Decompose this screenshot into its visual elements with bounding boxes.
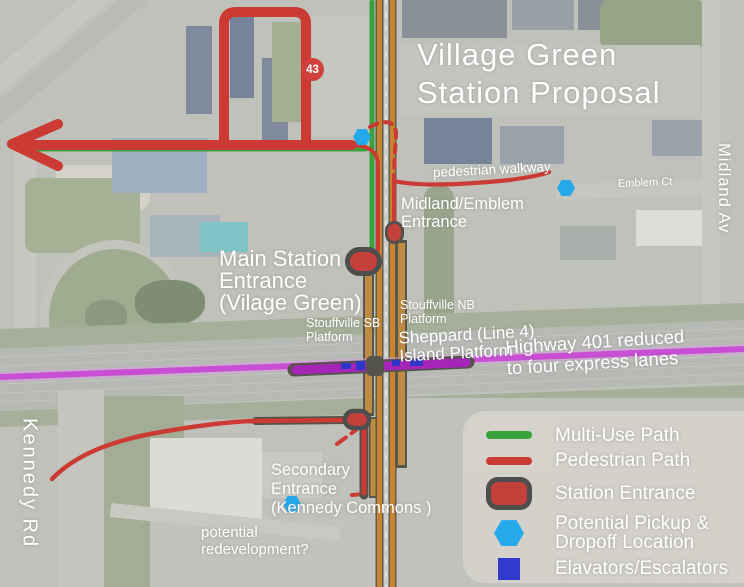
legend-label: Potential Pickup & Dropoff Location (555, 514, 709, 552)
pedestrian-path-line-icon (486, 457, 532, 465)
kennedy-commons-path (52, 421, 258, 479)
elevator-square-icon (498, 558, 520, 580)
label-midland-emblem-entrance: Midland/Emblem Entrance (401, 196, 524, 232)
secondary-entrance-marker (345, 411, 369, 428)
legend-row-multi-use-path: Multi-Use Path (463, 422, 744, 448)
pickup-hexagon (557, 180, 575, 196)
pickup-dropoff-hexagon-icon (494, 520, 524, 546)
legend-label: Multi-Use Path (555, 426, 680, 445)
label-emblem-ct: Emblem Ct (618, 177, 673, 191)
legend-row-pedestrian-path: Pedestrian Path (463, 448, 744, 473)
legend-row-station-entrance: Station Entrance (463, 477, 744, 511)
route-43-badge: 43 (301, 58, 324, 81)
legend-label: Elavators/Escalators (555, 559, 728, 578)
multi-use-path (38, 2, 372, 256)
legend-label: Pedestrian Path (555, 451, 690, 470)
elevator-square (356, 361, 365, 370)
route-43-loop (224, 12, 306, 142)
dashed-path-secondary (337, 430, 356, 444)
elevator-square (341, 363, 351, 370)
label-main-station-entrance: Main Station Entrance (Vilage Green) (219, 248, 362, 314)
legend-row-elevators: Elavators/Escalators (463, 555, 744, 583)
label-stouffville-sb-platform: Stouffville SB Platform (306, 317, 380, 344)
label-kennedy-rd: Kennedy Rd (18, 418, 40, 548)
rail-crossing-structure (366, 356, 384, 376)
station-proposal-map: Village Green Station Proposal pedestria… (0, 0, 744, 587)
label-midland-av: Midland Av (714, 143, 732, 233)
legend-label: Station Entrance (555, 484, 695, 503)
legend-row-pickup-dropoff: Potential Pickup & Dropoff Location (463, 512, 744, 553)
multi-use-path-line-icon (486, 431, 532, 439)
station-entrance-marker-icon (486, 477, 532, 510)
page-title: Village Green Station Proposal (417, 36, 660, 112)
legend-panel: Multi-Use Path Pedestrian Path Station E… (463, 411, 744, 583)
label-potential-redevelopment: potential redevelopment? (201, 524, 309, 558)
route-43-badge-text: 43 (306, 64, 319, 76)
label-secondary-entrance: Secondary Entrance (Kennedy Commons ) (271, 461, 431, 518)
label-stouffville-nb-platform: Stouffville NB Platform (400, 299, 475, 326)
